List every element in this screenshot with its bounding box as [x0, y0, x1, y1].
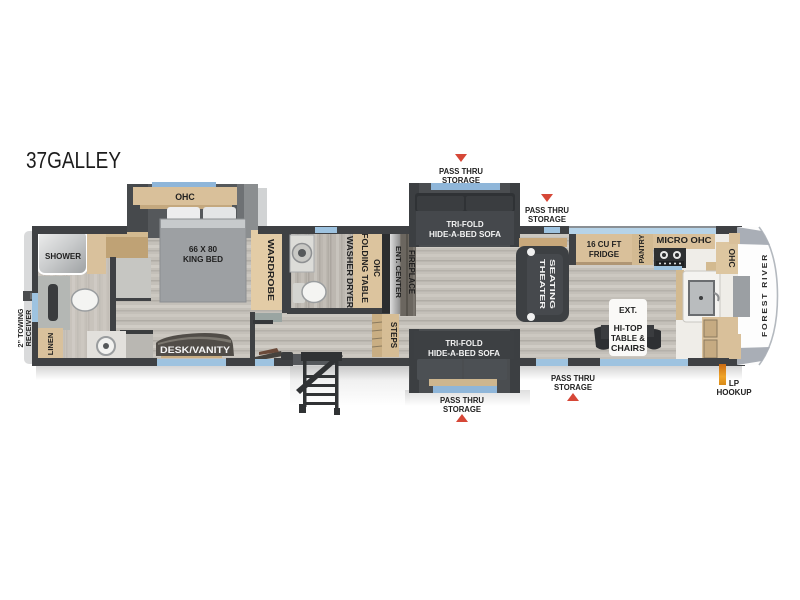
svg-text:DESK/VANITY: DESK/VANITY: [160, 345, 230, 355]
svg-text:PASS THRU: PASS THRU: [551, 374, 595, 383]
svg-text:TRI-FOLD: TRI-FOLD: [446, 220, 484, 229]
svg-text:PASS THRU: PASS THRU: [439, 167, 483, 176]
svg-text:PASS THRU: PASS THRU: [525, 206, 569, 215]
svg-text:STORAGE: STORAGE: [442, 176, 481, 185]
svg-text:HOOKUP: HOOKUP: [716, 388, 752, 397]
svg-text:LP: LP: [729, 379, 740, 388]
svg-text:RECEIVER: RECEIVER: [24, 309, 33, 347]
svg-text:FOLDING TABLE: FOLDING TABLE: [360, 233, 369, 304]
svg-text:STORAGE: STORAGE: [443, 405, 482, 414]
svg-text:TRI-FOLD: TRI-FOLD: [445, 339, 483, 348]
svg-text:OHC: OHC: [372, 259, 381, 277]
svg-text:TABLE &: TABLE &: [611, 333, 645, 343]
svg-text:FIREPLACE: FIREPLACE: [407, 250, 416, 295]
svg-text:PASS THRU: PASS THRU: [440, 396, 484, 405]
svg-text:37GALLEY: 37GALLEY: [26, 147, 121, 173]
svg-text:ENT. CENTER: ENT. CENTER: [394, 246, 403, 299]
svg-text:SHOWER: SHOWER: [45, 252, 81, 261]
svg-text:OHC: OHC: [727, 249, 736, 268]
svg-text:MICRO OHC: MICRO OHC: [657, 236, 712, 245]
svg-text:WASHER: WASHER: [345, 236, 354, 276]
svg-text:LINEN: LINEN: [46, 333, 55, 356]
svg-text:HIDE-A-BED SOFA: HIDE-A-BED SOFA: [428, 349, 500, 358]
svg-text:STORAGE: STORAGE: [554, 383, 593, 392]
svg-text:HI-TOP: HI-TOP: [614, 323, 643, 333]
svg-text:STEPS: STEPS: [389, 322, 398, 349]
svg-text:WARDROBE: WARDROBE: [266, 239, 275, 302]
svg-text:EXT.: EXT.: [619, 305, 637, 315]
svg-text:DRYER: DRYER: [345, 278, 354, 308]
svg-text:FOREST RIVER: FOREST RIVER: [760, 253, 769, 337]
svg-text:HIDE-A-BED SOFA: HIDE-A-BED SOFA: [429, 230, 501, 239]
svg-text:STORAGE: STORAGE: [528, 215, 567, 224]
svg-text:16 CU FT: 16 CU FT: [587, 240, 622, 249]
svg-text:CHAIRS: CHAIRS: [611, 343, 645, 353]
svg-text:KING BED: KING BED: [183, 255, 223, 264]
svg-text:FRIDGE: FRIDGE: [589, 250, 620, 259]
svg-text:OHC: OHC: [175, 192, 195, 202]
svg-text:PANTRY: PANTRY: [637, 234, 646, 263]
svg-text:SEATING: SEATING: [548, 259, 557, 309]
svg-text:THEATER: THEATER: [538, 259, 547, 310]
svg-text:66 X 80: 66 X 80: [189, 245, 218, 254]
